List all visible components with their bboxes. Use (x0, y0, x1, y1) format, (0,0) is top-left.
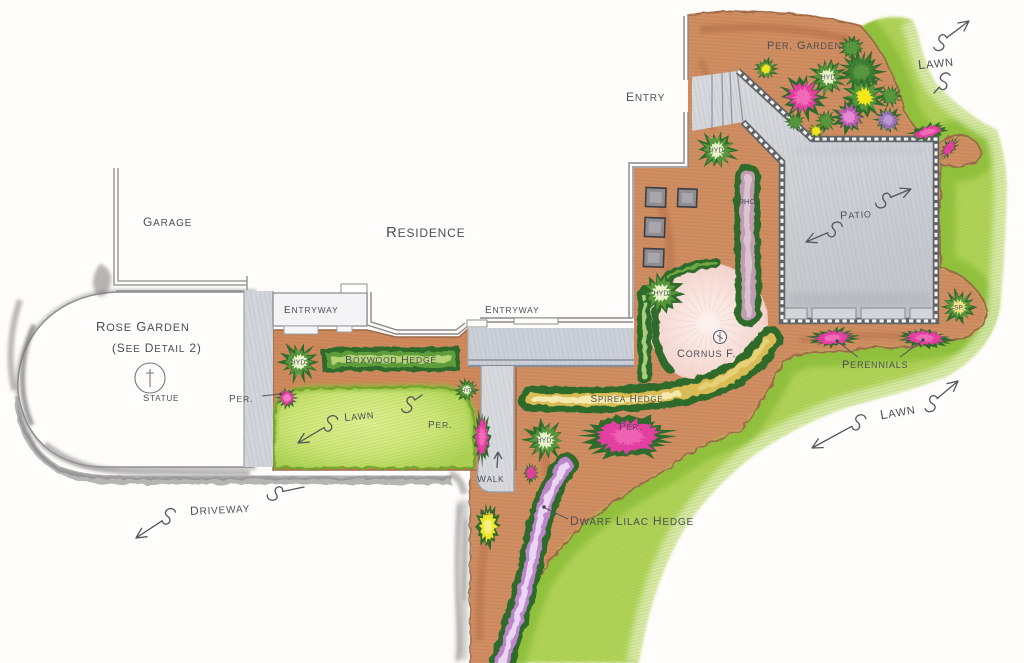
svg-text:GARAGE: GARAGE (143, 215, 192, 229)
svg-text:PER.: PER. (428, 420, 453, 431)
svg-text:PERENNIALS: PERENNIALS (842, 359, 908, 371)
svg-text:ENTRYWAY: ENTRYWAY (284, 305, 339, 316)
svg-text:DWARF LILAC HEDGE: DWARF LILAC HEDGE (570, 514, 694, 528)
svg-text:BOXWOOD HEDGE: BOXWOOD HEDGE (345, 354, 437, 366)
svg-text:(SEE DETAIL 2): (SEE DETAIL 2) (112, 341, 202, 355)
svg-text:PER.: PER. (480, 510, 496, 517)
svg-text:PER. GARDEN: PER. GARDEN (767, 40, 842, 52)
svg-text:HYD: HYD (821, 75, 836, 82)
svg-text:PER.: PER. (619, 422, 643, 433)
svg-text:RHO.: RHO. (739, 197, 758, 206)
svg-text:PER.: PER. (229, 394, 254, 405)
svg-text:ENTRYWAY: ENTRYWAY (485, 305, 540, 316)
svg-text:SPIREA HEDGE: SPIREA HEDGE (591, 394, 664, 405)
svg-text:HYD.: HYD. (291, 360, 308, 367)
svg-text:CORNUS F.: CORNUS F. (677, 348, 736, 360)
svg-text:WALK: WALK (477, 474, 504, 485)
svg-text:HYD: HYD (654, 291, 669, 298)
svg-text:RESIDENCE: RESIDENCE (386, 224, 465, 241)
svg-text:ROSE GARDEN: ROSE GARDEN (96, 319, 190, 334)
svg-text:SP.: SP. (954, 304, 964, 311)
svg-text:HYD.: HYD. (709, 148, 726, 155)
svg-text:STATUE: STATUE (143, 393, 179, 404)
svg-text:ENTRY: ENTRY (626, 90, 665, 104)
svg-text:HYD: HYD (461, 388, 473, 394)
svg-text:HYD.: HYD. (537, 438, 554, 445)
